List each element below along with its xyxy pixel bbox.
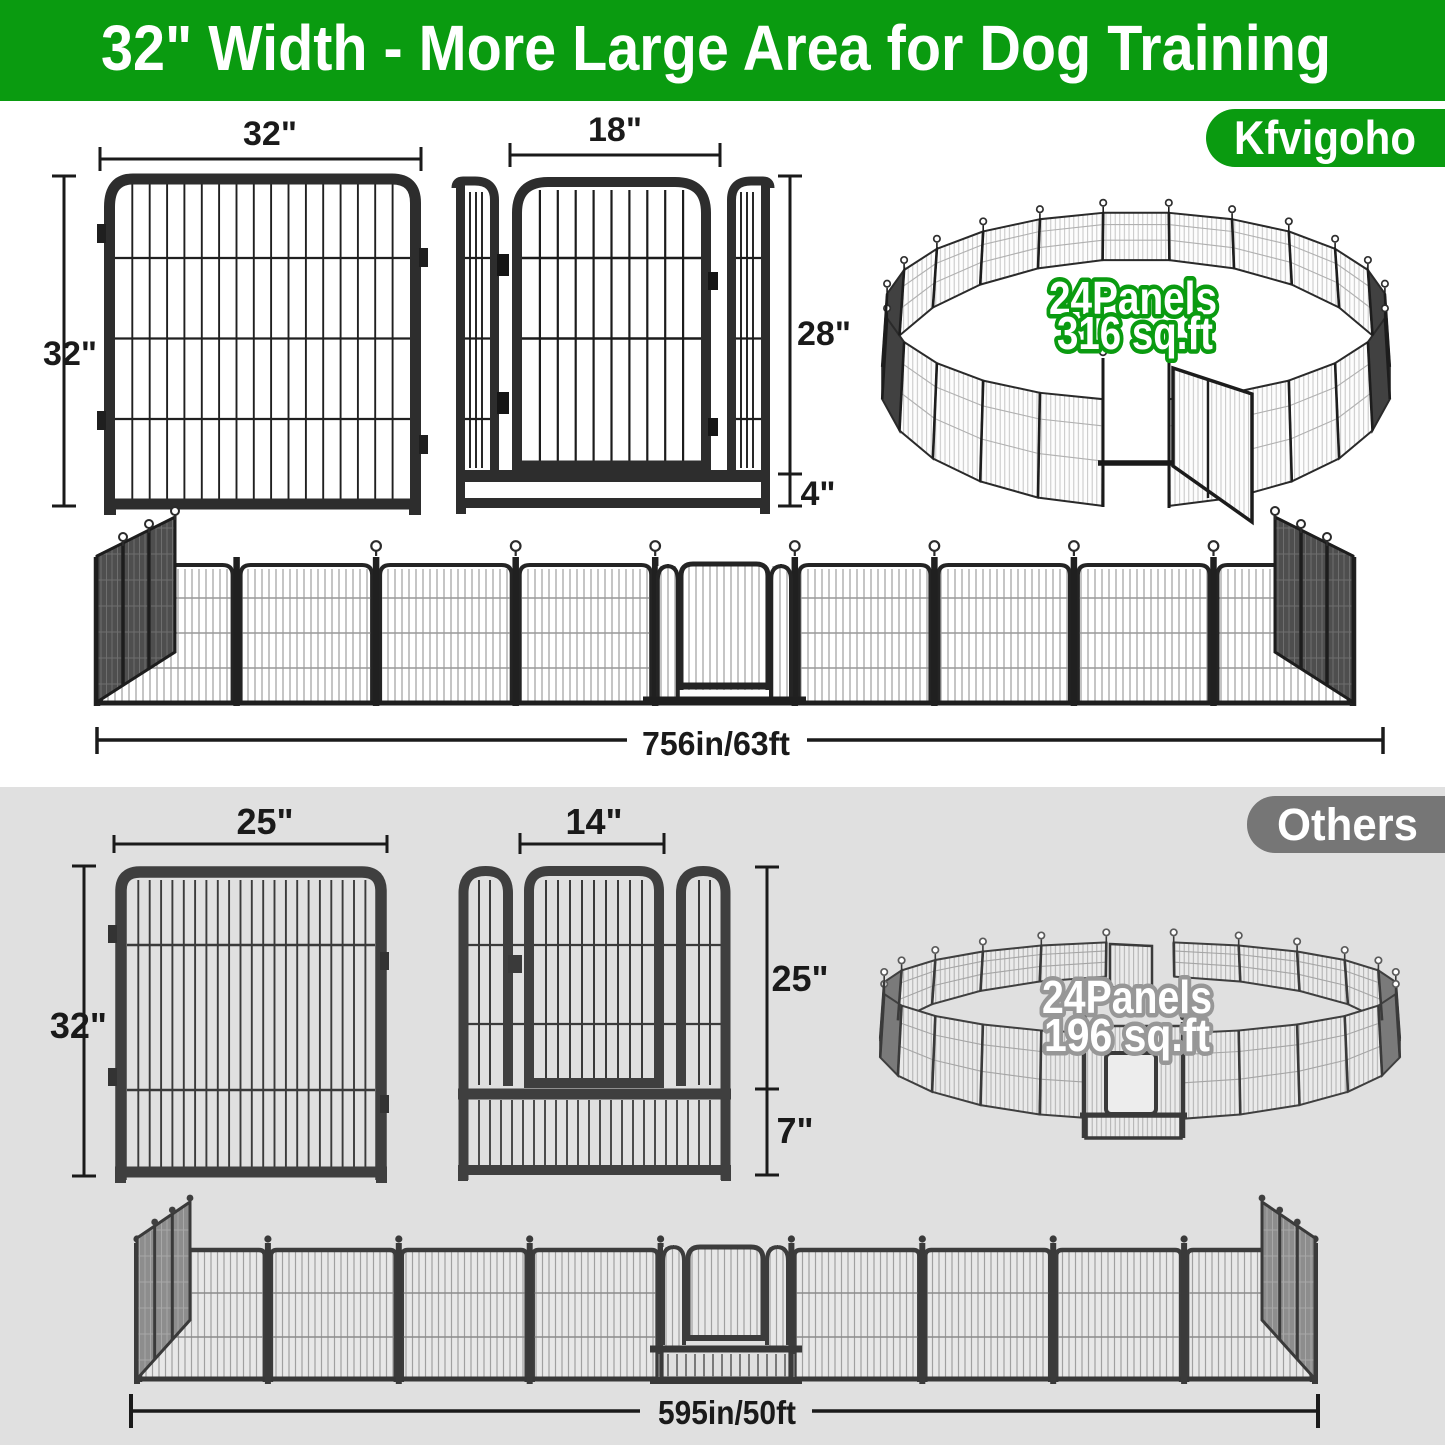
svg-text:32": 32": [43, 335, 97, 373]
svg-text:4": 4": [800, 475, 835, 513]
svg-text:595in/50ft: 595in/50ft: [658, 1394, 796, 1431]
svg-text:25": 25": [771, 958, 828, 999]
svg-text:Others: Others: [1277, 799, 1418, 850]
svg-text:14": 14": [565, 801, 622, 842]
svg-text:18": 18": [588, 111, 642, 149]
svg-text:32": 32": [243, 115, 297, 153]
svg-text:32" Width - More Large Area fo: 32" Width - More Large Area for Dog Trai…: [101, 12, 1331, 84]
svg-text:28": 28": [797, 315, 851, 353]
svg-text:756in/63ft: 756in/63ft: [642, 725, 790, 762]
svg-text:316 sq.ft: 316 sq.ft: [1057, 307, 1213, 359]
svg-text:Kfvigoho: Kfvigoho: [1234, 111, 1416, 164]
svg-text:32": 32": [50, 1005, 107, 1046]
svg-text:196 sq.ft: 196 sq.ft: [1044, 1009, 1210, 1061]
svg-text:7": 7": [776, 1110, 813, 1151]
svg-text:25": 25": [236, 801, 293, 842]
